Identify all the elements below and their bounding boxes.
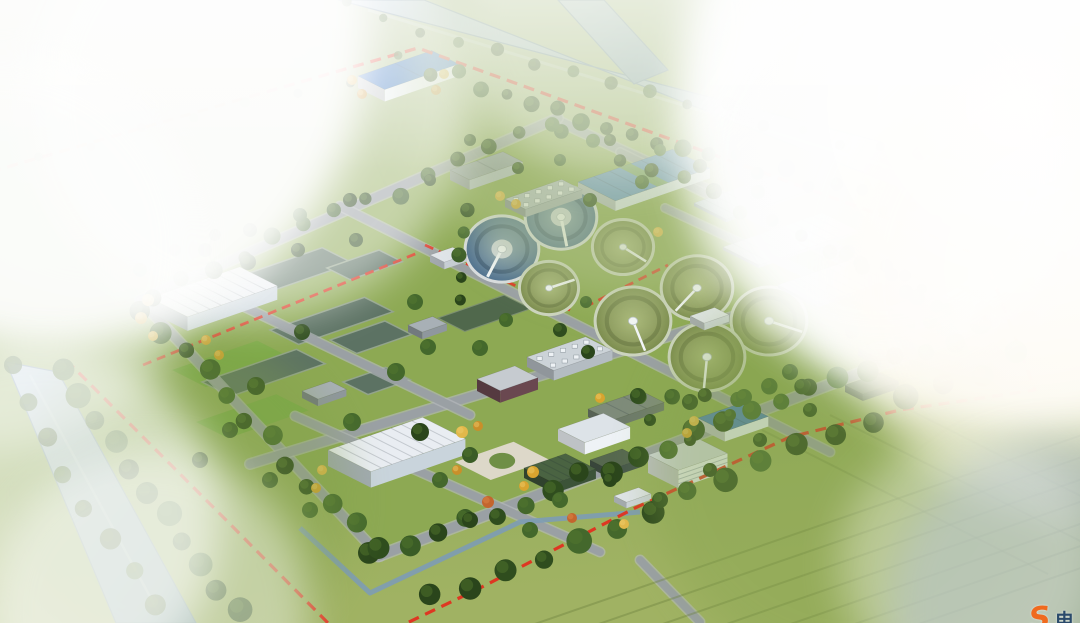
tree-highlight bbox=[421, 340, 430, 349]
tree-highlight bbox=[295, 325, 304, 334]
tree-highlight bbox=[519, 498, 528, 507]
tree-highlight bbox=[571, 464, 582, 475]
rooftop-unit bbox=[550, 363, 555, 367]
yellow-tree-highlight bbox=[457, 427, 464, 434]
tree-highlight bbox=[554, 324, 562, 332]
tree-highlight bbox=[544, 481, 556, 493]
yellow-tree-highlight bbox=[453, 466, 459, 472]
tree-highlight bbox=[490, 509, 499, 518]
tree-highlight bbox=[402, 537, 414, 549]
rooftop-unit bbox=[562, 359, 567, 363]
tree-highlight bbox=[553, 493, 562, 502]
plant-aerial-rendering bbox=[0, 0, 1080, 623]
watermark-text: 电 bbox=[1055, 609, 1074, 623]
tree-highlight bbox=[413, 424, 423, 434]
tree-highlight bbox=[457, 273, 463, 279]
aerial-rendering-viewport: S 电 bbox=[0, 0, 1080, 623]
tree-highlight bbox=[582, 346, 590, 354]
tree-highlight bbox=[569, 530, 583, 544]
tree-highlight bbox=[430, 525, 440, 535]
tree-highlight bbox=[463, 448, 472, 457]
tree-highlight bbox=[408, 295, 417, 304]
watermark-logo-icon: S bbox=[1028, 604, 1052, 623]
tree-highlight bbox=[369, 539, 381, 551]
tree-highlight bbox=[345, 414, 355, 424]
tree-highlight bbox=[609, 520, 620, 531]
tree-highlight bbox=[631, 389, 640, 398]
rooftop-unit bbox=[572, 344, 577, 348]
watermark: S 电 bbox=[1029, 605, 1074, 623]
courtyard-garden bbox=[489, 453, 515, 469]
rooftop-unit bbox=[584, 340, 589, 344]
yellow-tree-highlight bbox=[620, 520, 626, 526]
rooftop-unit bbox=[549, 352, 554, 356]
secondary-clarifier-1-hub bbox=[628, 317, 637, 325]
tree-highlight bbox=[463, 513, 472, 522]
orange-tree-highlight bbox=[568, 514, 574, 520]
tree-highlight bbox=[473, 341, 482, 350]
tree-highlight bbox=[630, 448, 641, 459]
sky-haze-fade bbox=[0, 0, 1080, 170]
yellow-tree-highlight bbox=[596, 394, 602, 400]
tree-highlight bbox=[581, 297, 588, 304]
tree-highlight bbox=[604, 474, 612, 482]
yellow-tree-highlight bbox=[528, 467, 535, 474]
tree-highlight bbox=[461, 579, 473, 591]
yellow-tree-highlight bbox=[520, 482, 526, 488]
yellow-tree-highlight bbox=[474, 422, 480, 428]
tree-highlight bbox=[500, 314, 508, 322]
tree-highlight bbox=[496, 561, 508, 573]
rooftop-unit bbox=[574, 355, 579, 359]
tree-highlight bbox=[523, 523, 532, 532]
rooftop-unit bbox=[597, 347, 602, 351]
tree-highlight bbox=[433, 473, 442, 482]
tree-highlight bbox=[536, 552, 546, 562]
tree-highlight bbox=[456, 295, 462, 301]
rooftop-unit bbox=[537, 356, 542, 360]
orange-tree-highlight bbox=[483, 497, 490, 504]
rooftop-unit bbox=[560, 348, 565, 352]
covered-tank-1-hub bbox=[545, 285, 552, 291]
tree-highlight bbox=[645, 415, 652, 422]
tree-highlight bbox=[349, 514, 360, 525]
tree-highlight bbox=[389, 364, 399, 374]
tree-highlight bbox=[459, 227, 466, 234]
tree-highlight bbox=[421, 585, 433, 597]
tree-highlight bbox=[453, 249, 461, 257]
